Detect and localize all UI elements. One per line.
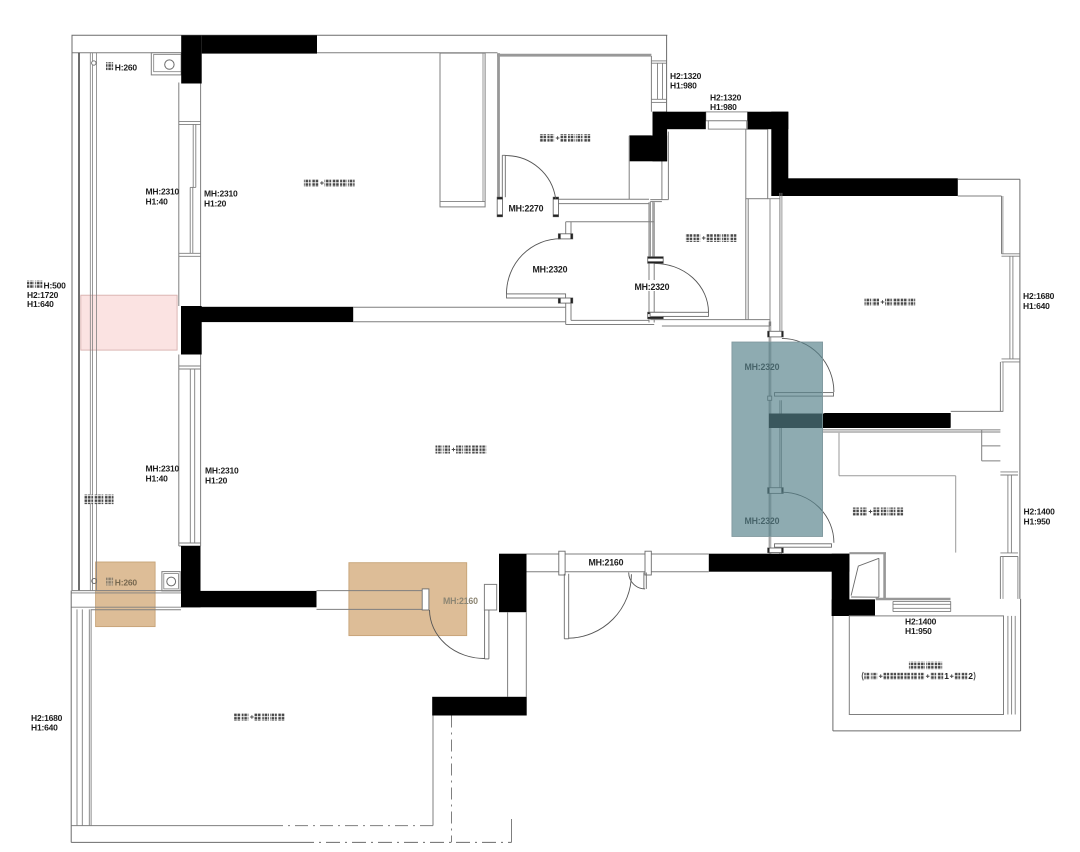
svg-text:H1:640: H1:640 — [1023, 301, 1050, 311]
svg-text:MH:2310: MH:2310 — [146, 464, 180, 474]
svg-text:MH:2320: MH:2320 — [533, 265, 568, 275]
svg-text:H1:950: H1:950 — [1024, 517, 1051, 527]
svg-text:1: 1 — [944, 671, 949, 681]
svg-text:H2:1320: H2:1320 — [710, 93, 742, 103]
svg-text:MH:2310: MH:2310 — [146, 187, 180, 197]
svg-text:MH:2310: MH:2310 — [205, 466, 239, 476]
svg-text:H:500: H:500 — [44, 280, 67, 290]
svg-text:MH:2310: MH:2310 — [204, 189, 238, 199]
svg-text:MH:2160: MH:2160 — [443, 596, 478, 606]
svg-text:H1:980: H1:980 — [710, 102, 737, 112]
svg-text:H2:1400: H2:1400 — [905, 617, 937, 627]
svg-text:H:260: H:260 — [115, 578, 138, 588]
svg-text:H:260: H:260 — [115, 62, 138, 72]
svg-text:H1:980: H1:980 — [670, 81, 697, 91]
svg-text:H2:1400: H2:1400 — [1024, 507, 1056, 517]
svg-text:H2:1680: H2:1680 — [31, 713, 63, 723]
svg-text:H2:1680: H2:1680 — [1023, 291, 1055, 301]
svg-text:H1:20: H1:20 — [205, 476, 228, 486]
svg-text:H1:40: H1:40 — [146, 474, 169, 484]
svg-text:H1:640: H1:640 — [27, 299, 54, 309]
svg-text:2: 2 — [968, 671, 973, 681]
svg-text:MH:2270: MH:2270 — [509, 204, 544, 214]
svg-text:H1:640: H1:640 — [31, 723, 58, 733]
svg-text:H1:950: H1:950 — [905, 626, 932, 636]
svg-text:H1:40: H1:40 — [146, 197, 169, 207]
svg-text:H1:20: H1:20 — [204, 199, 227, 209]
svg-text:H2:1320: H2:1320 — [670, 71, 702, 81]
svg-text:MH:2160: MH:2160 — [589, 558, 624, 568]
svg-text:MH:2320: MH:2320 — [635, 282, 670, 292]
